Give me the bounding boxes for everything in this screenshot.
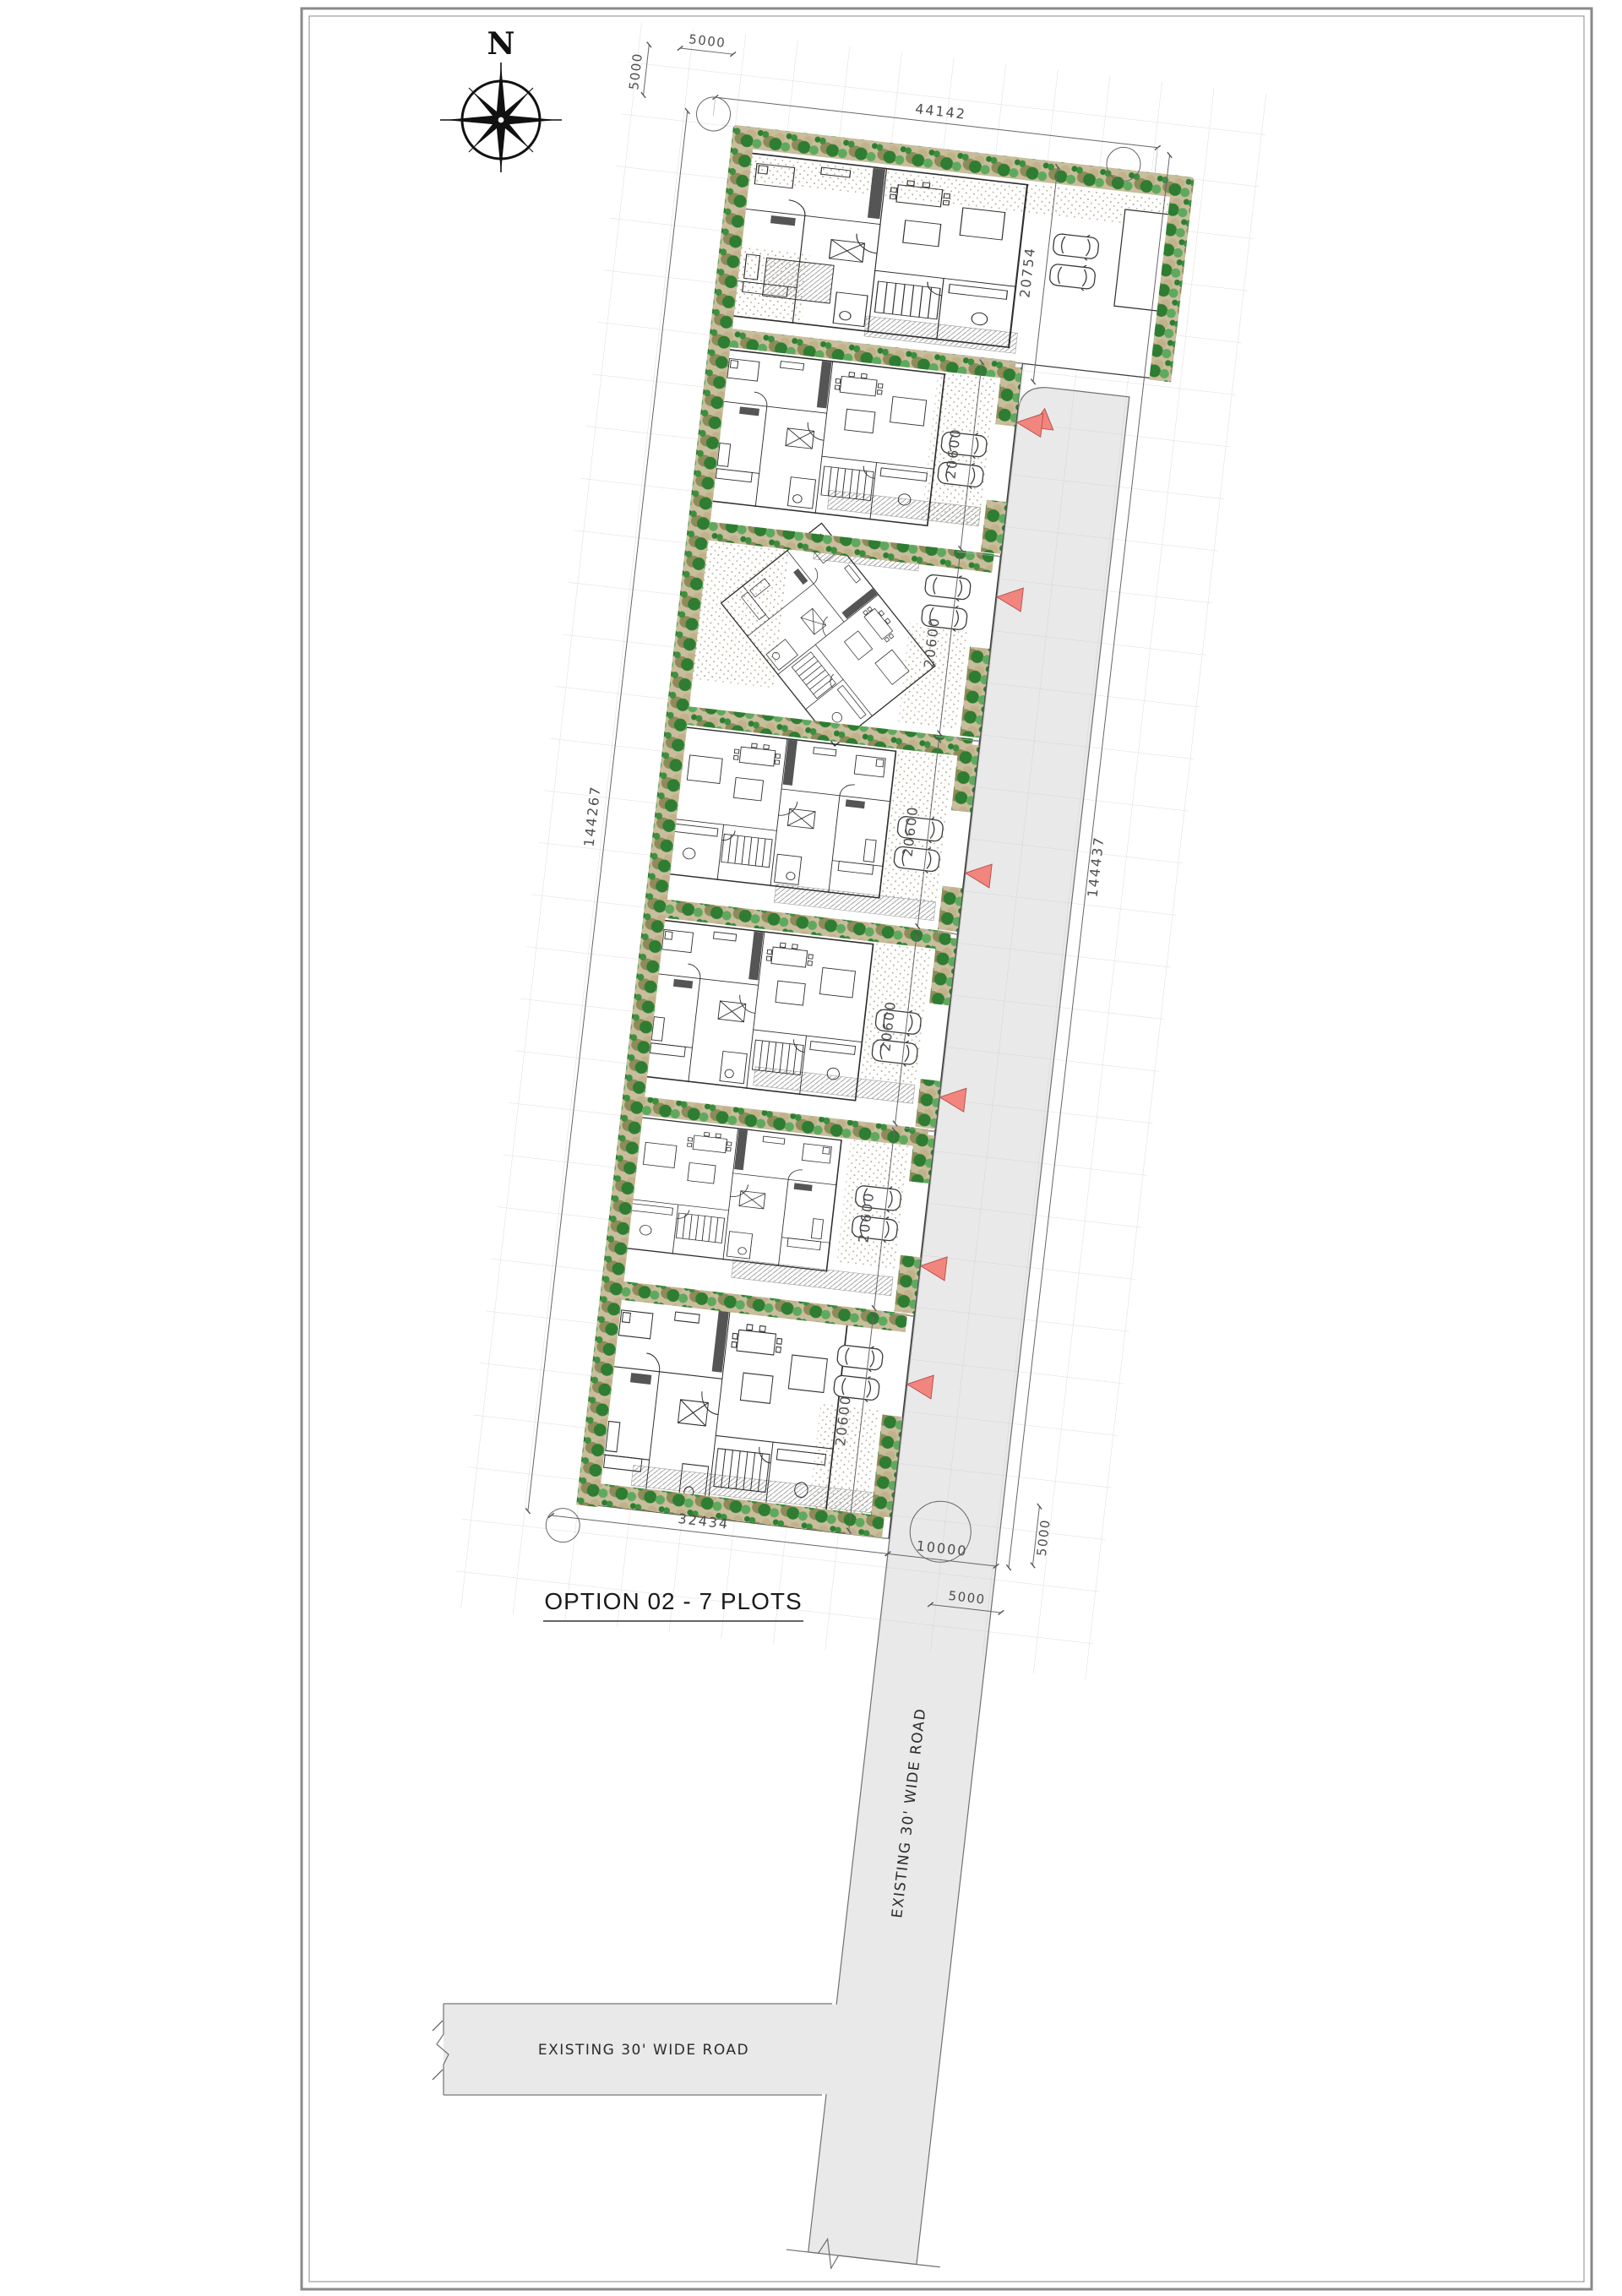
north-label: N (487, 26, 515, 62)
horizontal-road-label: EXISTING 30' WIDE ROAD (538, 2042, 749, 2059)
north-compass: N (440, 26, 562, 177)
house-1-pool (763, 258, 835, 303)
horizontal-road: EXISTING 30' WIDE ROAD (433, 2004, 879, 2095)
site-plan-sheet: N (0, 0, 1622, 2296)
site-group: 44142 5000 5000 20754 20600 20600 20600 … (382, 21, 1270, 2289)
drawing-title: OPTION 02 - 7 PLOTS (544, 1588, 802, 1614)
site-plan-drawing: N (0, 0, 1622, 2296)
